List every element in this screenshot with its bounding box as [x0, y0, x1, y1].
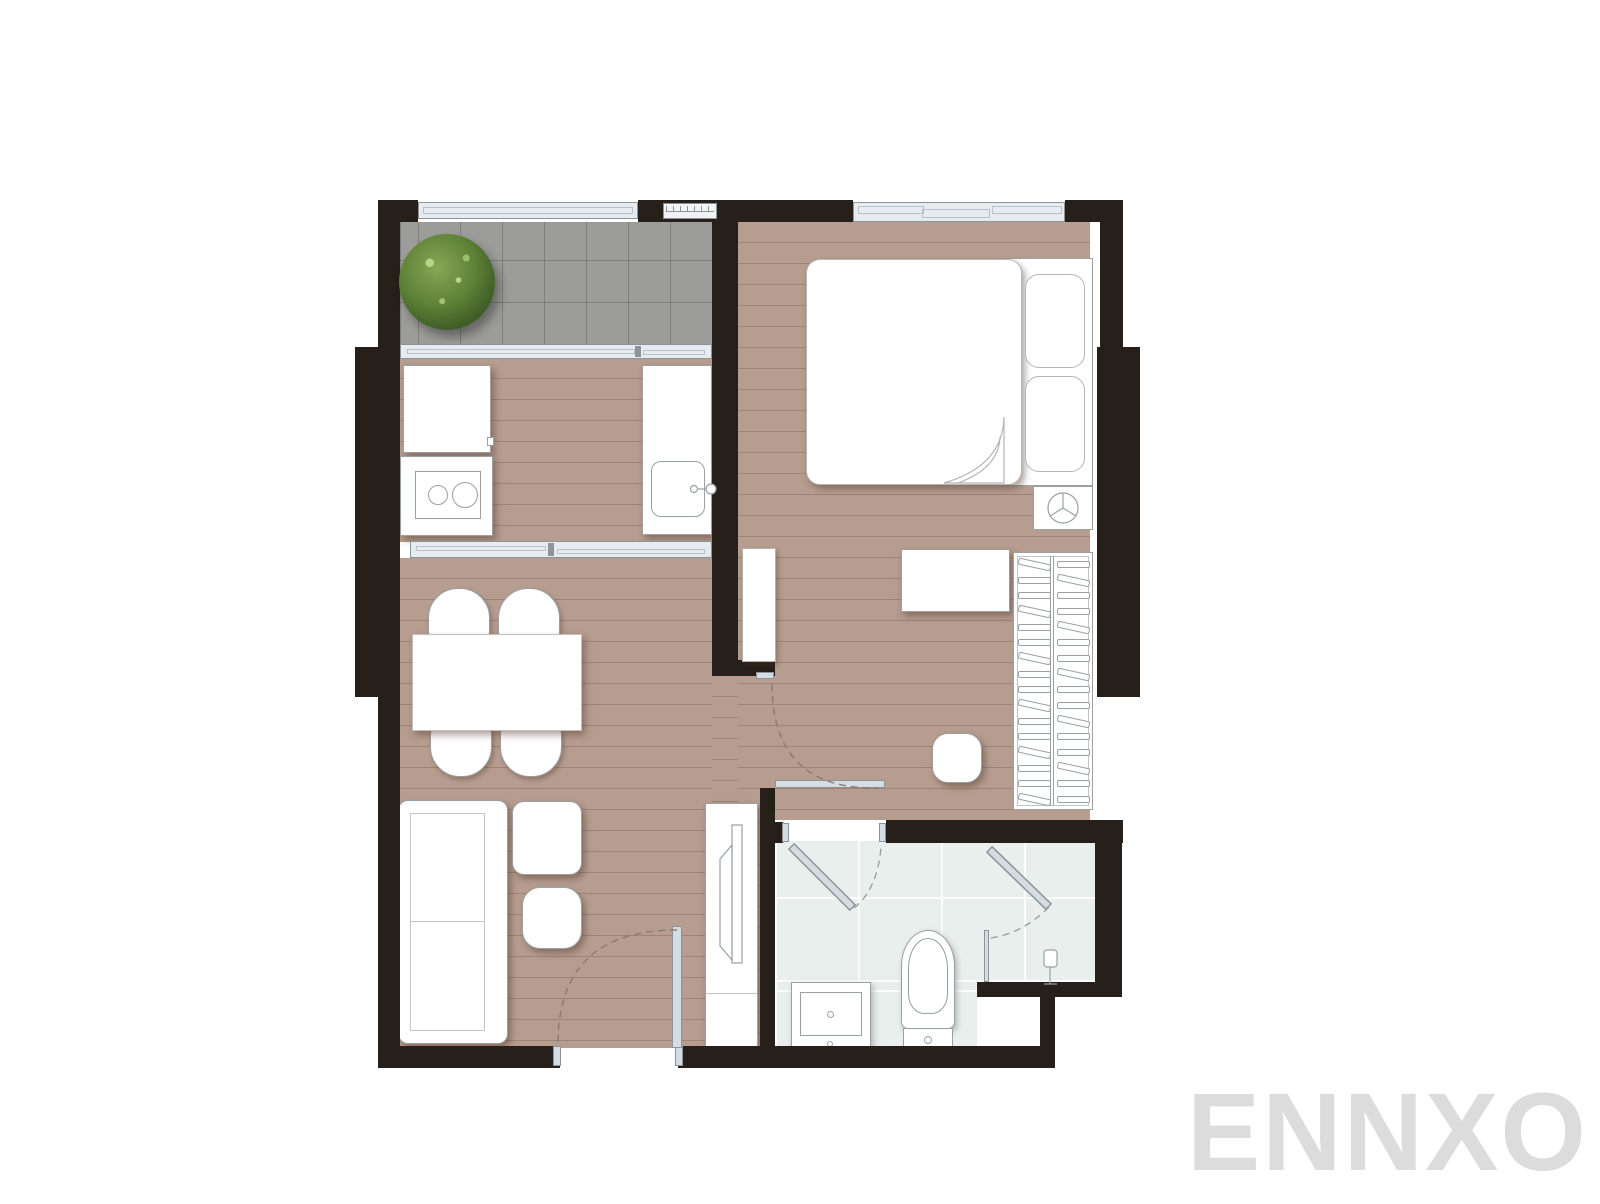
hanger-row — [1018, 765, 1090, 772]
watermark-text: ENNXO — [1187, 1078, 1588, 1188]
plant-icon — [399, 234, 495, 330]
entry-door-post-right — [675, 1046, 683, 1066]
toilet-seat — [908, 938, 948, 1014]
wall-bath-top — [886, 820, 1123, 843]
wall-bedroom-divider — [712, 222, 738, 676]
hanger-row — [1018, 671, 1090, 678]
hanger-icon — [1057, 620, 1091, 634]
hanger-row — [1018, 780, 1090, 787]
hanger-row — [1018, 686, 1090, 693]
hanger-icon — [1018, 746, 1052, 760]
balcony-railing — [418, 202, 638, 219]
kitchen-sink — [651, 461, 705, 517]
wall-bath-left — [760, 788, 775, 1068]
tv-cabinet-divider — [706, 993, 757, 994]
burner-small — [428, 485, 448, 505]
hanger-icon — [1057, 714, 1091, 728]
entry-door-post-left — [553, 1046, 561, 1066]
toilet-flush-button — [924, 1036, 932, 1044]
hanger-row — [1018, 577, 1090, 584]
hanger-icon — [1057, 639, 1090, 646]
desk — [901, 549, 1010, 612]
hanger-row — [1018, 702, 1090, 709]
hanger-icon — [1057, 655, 1090, 662]
hanger-icon — [1057, 733, 1090, 740]
wall-bath-notch-h — [977, 982, 1122, 997]
hanger-icon — [1018, 605, 1052, 619]
fridge-handle — [487, 437, 494, 446]
hanger-icon — [1057, 667, 1091, 681]
hanger-icon — [1057, 608, 1090, 615]
bedroom-door-threshold — [775, 780, 885, 788]
bedside-fan-unit — [1033, 486, 1093, 530]
wall-top-left — [378, 200, 418, 222]
hanger-icon — [1018, 733, 1051, 740]
hanger-icon — [1018, 592, 1051, 599]
shower-glass-panel — [984, 930, 989, 982]
wall-bottom-left — [378, 1046, 560, 1068]
pillow — [1025, 274, 1085, 368]
hanger-row — [1018, 561, 1090, 568]
dining-chair — [428, 588, 490, 638]
burner-large — [452, 482, 478, 508]
ac-vent — [663, 203, 717, 219]
wall-bath-right — [1095, 820, 1122, 997]
hanger-icon — [1018, 671, 1051, 678]
hanger-icon — [1057, 796, 1090, 803]
pouf — [522, 887, 582, 949]
hanger-icon — [1057, 761, 1091, 775]
hanger-icon — [1057, 749, 1090, 756]
kitchen-dining-sliding-window — [410, 541, 712, 558]
hanger-row — [1018, 608, 1090, 615]
wall-right-pier — [1097, 347, 1140, 697]
bedroom-door-sill — [756, 672, 774, 679]
wall-bottom-right — [678, 1046, 1055, 1068]
hanger-icon — [1018, 652, 1052, 666]
hanger-icon — [1057, 702, 1090, 709]
hanger-row — [1018, 592, 1090, 599]
sofa-seat-line — [410, 813, 485, 1031]
bedroom-window — [853, 202, 1065, 222]
hanger-row — [1018, 733, 1090, 740]
hanger-row — [1018, 749, 1090, 756]
wall-top-right — [1065, 200, 1123, 222]
hanger-icon — [1018, 780, 1051, 787]
bedroom-door-leaf-open — [742, 548, 776, 662]
hanger-icon — [1018, 686, 1051, 693]
bed-mattress — [806, 259, 1022, 485]
hanger-icon — [1057, 592, 1090, 599]
fridge — [403, 365, 491, 453]
entry-door-leaf — [672, 926, 682, 1048]
dining-table — [412, 634, 582, 731]
hanger-icon — [1018, 624, 1051, 631]
vanity-drain — [827, 1011, 834, 1018]
hanger-row — [1018, 718, 1090, 725]
dining-chair — [498, 588, 560, 638]
coffee-table — [512, 801, 582, 875]
kitchen-balcony-sliding-window — [400, 344, 712, 359]
hanger-icon — [1018, 577, 1051, 584]
wardrobe — [1013, 552, 1093, 810]
hanger-icon — [1057, 573, 1091, 587]
hanger-row — [1018, 796, 1090, 803]
hanger-icon — [1057, 780, 1090, 787]
hanger-icon — [1018, 639, 1051, 646]
bathroom-door-post-right — [879, 823, 886, 842]
hanger-icon — [1018, 699, 1052, 713]
hanger-icon — [1057, 686, 1090, 693]
sofa-seat-divider — [410, 921, 485, 922]
bathroom-door-post-left — [782, 823, 789, 842]
floor-plan: ENNXO — [0, 0, 1600, 1204]
wall-right-upper — [1100, 222, 1123, 347]
hanger-icon — [1018, 765, 1051, 772]
hanger-row — [1018, 624, 1090, 631]
stool — [932, 733, 982, 783]
hanger-row — [1018, 655, 1090, 662]
hanger-icon — [1018, 718, 1051, 725]
hanger-row — [1018, 639, 1090, 646]
hanger-icon — [1057, 561, 1090, 568]
tv-cabinet — [705, 803, 758, 1050]
pillow — [1025, 376, 1085, 472]
wardrobe-hangers — [1018, 561, 1090, 803]
wall-left-pier — [355, 347, 400, 697]
